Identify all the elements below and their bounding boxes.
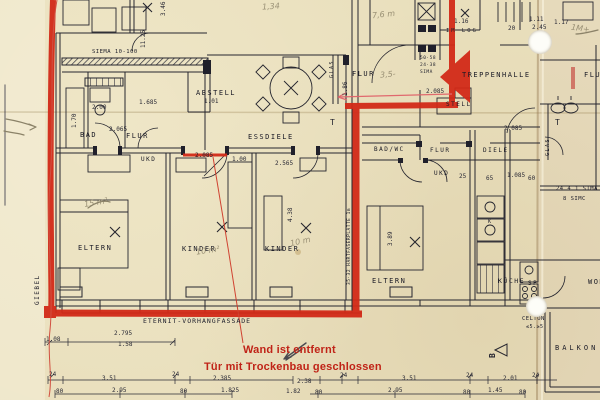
punch-hole-bottom	[526, 296, 547, 317]
red-outline-top	[345, 105, 458, 106]
pencil-marks	[4, 30, 598, 208]
red-edge-smudge	[571, 67, 575, 89]
wall-posts	[60, 25, 472, 297]
red-outline-bottom	[46, 313, 362, 314]
annotation-arrow-icon	[284, 343, 306, 360]
floorplan-linework	[0, 0, 600, 400]
red-corner-blob	[44, 306, 56, 318]
red-thin-guide	[338, 93, 452, 100]
walls	[56, 0, 600, 392]
floorplan-sheet: BAD FLUR ESSDIELE ABSTELL UKD ELTERN KIN…	[0, 0, 600, 400]
punch-hole-top	[528, 30, 552, 54]
